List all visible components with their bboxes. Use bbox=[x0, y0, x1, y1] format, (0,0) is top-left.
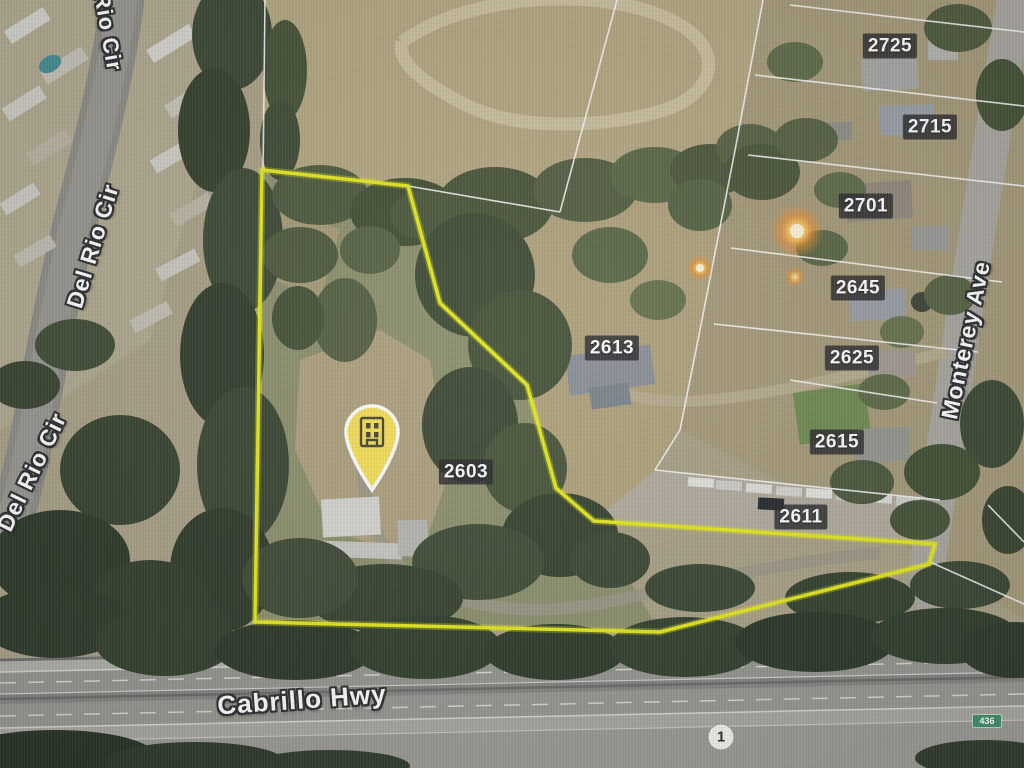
property-pin-marker[interactable] bbox=[340, 403, 404, 493]
exit-number-sign: 436 bbox=[972, 714, 1002, 728]
greenhouse bbox=[321, 497, 381, 538]
parcel-address-label: 2611 bbox=[774, 505, 827, 530]
parcel-address-label: 2645 bbox=[831, 276, 885, 301]
parcel-address-label: 2603 bbox=[439, 460, 493, 485]
satellite-map-view[interactable]: 272527152701264526252615261326032611 Del… bbox=[0, 0, 1024, 768]
parcel-address-label: 2701 bbox=[839, 194, 893, 219]
parcel-address-label: 2615 bbox=[810, 430, 864, 455]
route-1-shield: 1 bbox=[708, 724, 735, 751]
parcel-address-label: 2613 bbox=[585, 336, 639, 361]
parcel-address-label: 2715 bbox=[903, 115, 957, 140]
aerial-imagery bbox=[0, 0, 1024, 768]
parcel-address-label: 2725 bbox=[863, 34, 917, 59]
parcel-address-label: 2625 bbox=[825, 346, 879, 371]
